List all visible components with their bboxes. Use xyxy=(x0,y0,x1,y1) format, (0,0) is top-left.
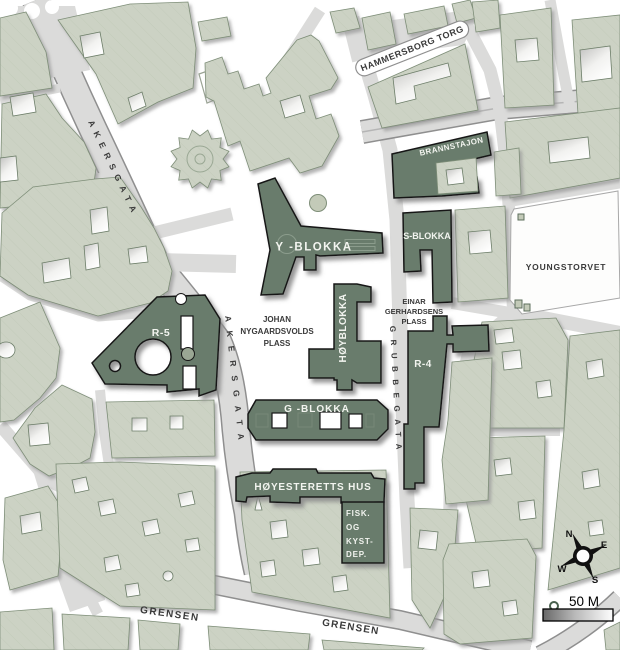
svg-text:JOHAN: JOHAN xyxy=(263,315,291,324)
svg-text:Y -BLOKKA: Y -BLOKKA xyxy=(275,242,352,254)
svg-text:W: W xyxy=(558,564,567,575)
svg-text:R-4: R-4 xyxy=(414,359,432,370)
svg-text:S-BLOKKA: S-BLOKKA xyxy=(403,231,451,241)
svg-text:YOUNGSTORVET: YOUNGSTORVET xyxy=(526,262,607,272)
svg-text:S: S xyxy=(592,575,598,586)
svg-text:GERHARDSENS: GERHARDSENS xyxy=(385,307,443,316)
svg-text:DEP.: DEP. xyxy=(346,550,367,559)
svg-text:NYGAARDSVOLDS: NYGAARDSVOLDS xyxy=(240,327,314,336)
svg-text:HØYESTERETTS HUS: HØYESTERETTS HUS xyxy=(254,482,371,493)
svg-text:PLASS: PLASS xyxy=(264,339,291,348)
svg-text:KYST-: KYST- xyxy=(346,537,374,546)
svg-text:N: N xyxy=(566,529,573,540)
svg-text:50 M: 50 M xyxy=(569,594,599,609)
svg-text:OG: OG xyxy=(346,523,360,532)
svg-text:E: E xyxy=(601,540,607,551)
svg-text:R-5: R-5 xyxy=(152,327,170,339)
svg-text:G -BLOKKA: G -BLOKKA xyxy=(284,404,350,415)
svg-text:PLASS: PLASS xyxy=(401,317,426,326)
svg-text:HØYBLOKKA: HØYBLOKKA xyxy=(338,294,349,363)
svg-text:EINAR: EINAR xyxy=(402,297,426,306)
svg-text:FISK.: FISK. xyxy=(346,509,370,518)
